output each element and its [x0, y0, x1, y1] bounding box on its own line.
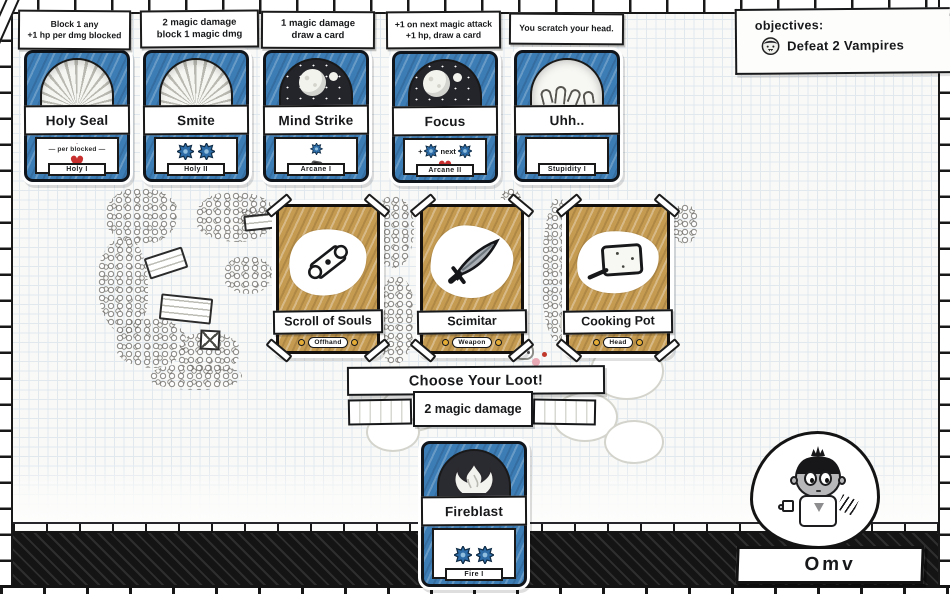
loot-slot: Weapon — [452, 337, 491, 348]
avatar-ear — [838, 476, 846, 485]
moon-icon — [423, 70, 450, 97]
left-brick-border — [0, 0, 13, 588]
slot-ribbon: Offhand — [287, 335, 369, 349]
card-school: Stupidity I — [538, 163, 596, 176]
scimitar-icon — [438, 228, 505, 295]
corner-stick — [653, 193, 680, 218]
hand-card-smite[interactable]: Smite Holy II — [143, 50, 249, 182]
map-wall-debris — [106, 188, 178, 244]
crate — [199, 329, 220, 350]
card-school: Holy II — [167, 163, 225, 176]
corner-stick — [409, 193, 436, 218]
tooltip-line: You scratch your head. — [519, 23, 613, 35]
action-card-fireblast[interactable]: Fireblast Fire I — [421, 441, 527, 587]
slot-dot-icon — [593, 339, 600, 346]
moon-dot-icon — [453, 73, 462, 82]
arcane-moon-art — [279, 58, 353, 110]
map-wall-debris — [224, 256, 272, 294]
objectives-panel: objectives: Defeat 2 Vampires — [735, 7, 950, 75]
loot-name: Cooking Pot — [563, 309, 673, 334]
slot-dot-icon — [298, 339, 305, 346]
arcane-moon-art — [408, 59, 482, 111]
tooltip-line: block 1 magic dmg — [157, 29, 243, 42]
loot-card-scimitar[interactable]: Scimitar Weapon — [420, 204, 524, 354]
card-school: Arcane II — [416, 164, 474, 177]
card-tooltip-focus: +1 on next magic attack +1 hp, draw a ca… — [386, 11, 501, 50]
map-wall-debris — [150, 364, 242, 390]
slot-ribbon: Head — [577, 335, 659, 349]
avatar-mouth — [816, 490, 821, 492]
right-brick-border — [938, 0, 950, 588]
slot-dot-icon — [442, 339, 449, 346]
tooltip-line: 2 magic damage — [162, 16, 236, 29]
objective-label: Defeat 2 Vampires — [787, 37, 904, 53]
map-wall-debris — [116, 318, 186, 368]
claws-icon — [836, 494, 858, 516]
mug-icon — [782, 500, 794, 512]
magic-star-icon — [458, 144, 472, 158]
holy-dome-art — [40, 58, 114, 110]
card-tooltip-uhh: You scratch your head. — [509, 13, 624, 46]
hand-card-mind-strike[interactable]: Mind Strike Arcane I — [263, 50, 369, 182]
card-note: — per blocked — — [49, 146, 106, 153]
card-name: Smite — [143, 105, 249, 136]
blood-speck — [542, 352, 547, 357]
loot-slot: Head — [603, 337, 632, 348]
slot-dot-icon — [636, 339, 643, 346]
hand-card-holy-seal[interactable]: Holy Seal — per blocked — ♥ Holy I — [24, 50, 130, 182]
card-name: Holy Seal — [24, 105, 130, 136]
hand-card-uhh[interactable]: Uhh.. Stupidity I — [514, 50, 620, 182]
ribbon-left — [348, 398, 412, 425]
avatar-eye — [819, 471, 832, 486]
card-name: Mind Strike — [263, 105, 369, 136]
tooltip-line: Block 1 any — [51, 19, 99, 31]
wood-plank — [144, 246, 189, 279]
magic-star-icon — [476, 546, 494, 564]
plus-label: + — [418, 147, 422, 156]
loot-art — [287, 219, 369, 305]
avatar-eye — [804, 471, 817, 486]
next-label: next — [440, 147, 455, 156]
magic-star-icon — [177, 143, 194, 160]
avatar-hair — [796, 457, 840, 474]
cooking-pot-icon — [585, 238, 652, 286]
holy-dome-art — [159, 58, 233, 110]
card-name: Uhh.. — [514, 105, 620, 136]
avatar-hair-tuft — [811, 446, 825, 456]
avatar-ear — [790, 476, 798, 485]
magic-star-icon — [424, 144, 438, 158]
avatar-body — [799, 495, 837, 527]
loot-card-scroll-of-souls[interactable]: Scroll of Souls Offhand — [276, 204, 380, 354]
slot-dot-icon — [351, 339, 358, 346]
tooltip-line: draw a card — [292, 30, 345, 43]
wood-plank — [159, 293, 213, 324]
magic-star-icon — [198, 143, 215, 160]
avatar-shirt-print — [814, 503, 824, 512]
loot-art — [431, 219, 513, 305]
loot-name: Scroll of Souls — [273, 309, 383, 334]
player-name-plate: Omv — [735, 546, 924, 584]
shield-icon — [69, 143, 85, 144]
slot-dot-icon — [495, 339, 502, 346]
hand-card-focus[interactable]: Focus + next ♥ Arcane II — [392, 51, 498, 183]
moon-icon — [299, 69, 326, 96]
objectives-title: objectives: — [755, 17, 940, 33]
stupidity-scribble-art — [530, 58, 604, 110]
ribbon-right — [533, 398, 596, 425]
card-school: Holy I — [48, 163, 106, 176]
fire-flame-art — [437, 449, 511, 501]
card-tooltip-smite: 2 magic damage block 1 magic dmg — [140, 9, 259, 48]
moon-dot-icon — [329, 72, 338, 81]
card-tooltip-mind-strike: 1 magic damage draw a card — [261, 11, 375, 50]
game-screen: Block 1 any +1 hp per dmg blocked 2 magi… — [0, 0, 950, 594]
loot-art — [577, 219, 659, 305]
card-school: Arcane I — [287, 163, 345, 176]
tooltip-line: 1 magic damage — [281, 17, 355, 30]
tooltip-line: +1 hp per dmg blocked — [28, 30, 122, 42]
loot-card-cooking-pot[interactable]: Cooking Pot Head — [566, 204, 670, 354]
objective-item: Defeat 2 Vampires — [761, 35, 940, 56]
vampire-icon — [761, 37, 780, 56]
avatar-head — [795, 456, 841, 498]
card-tooltip-holy-seal: Block 1 any +1 hp per dmg blocked — [18, 10, 131, 51]
tooltip-line: +1 on next magic attack — [395, 18, 492, 30]
scroll-icon — [296, 230, 359, 293]
player-avatar — [750, 431, 880, 549]
card-school: Fire I — [445, 568, 503, 581]
loot-slot: Offhand — [308, 337, 347, 348]
draw-card-icon — [440, 178, 451, 180]
tooltip-line: +1 hp, draw a card — [406, 30, 481, 42]
slot-ribbon: Weapon — [431, 335, 513, 349]
magic-star-icon — [308, 143, 325, 155]
action-card-tooltip: 2 magic damage — [413, 391, 533, 427]
smoke-cloud — [604, 420, 664, 464]
card-name: Focus — [392, 106, 498, 137]
card-name: Fireblast — [421, 496, 527, 527]
magic-star-icon — [454, 546, 472, 564]
loot-name: Scimitar — [417, 309, 527, 334]
